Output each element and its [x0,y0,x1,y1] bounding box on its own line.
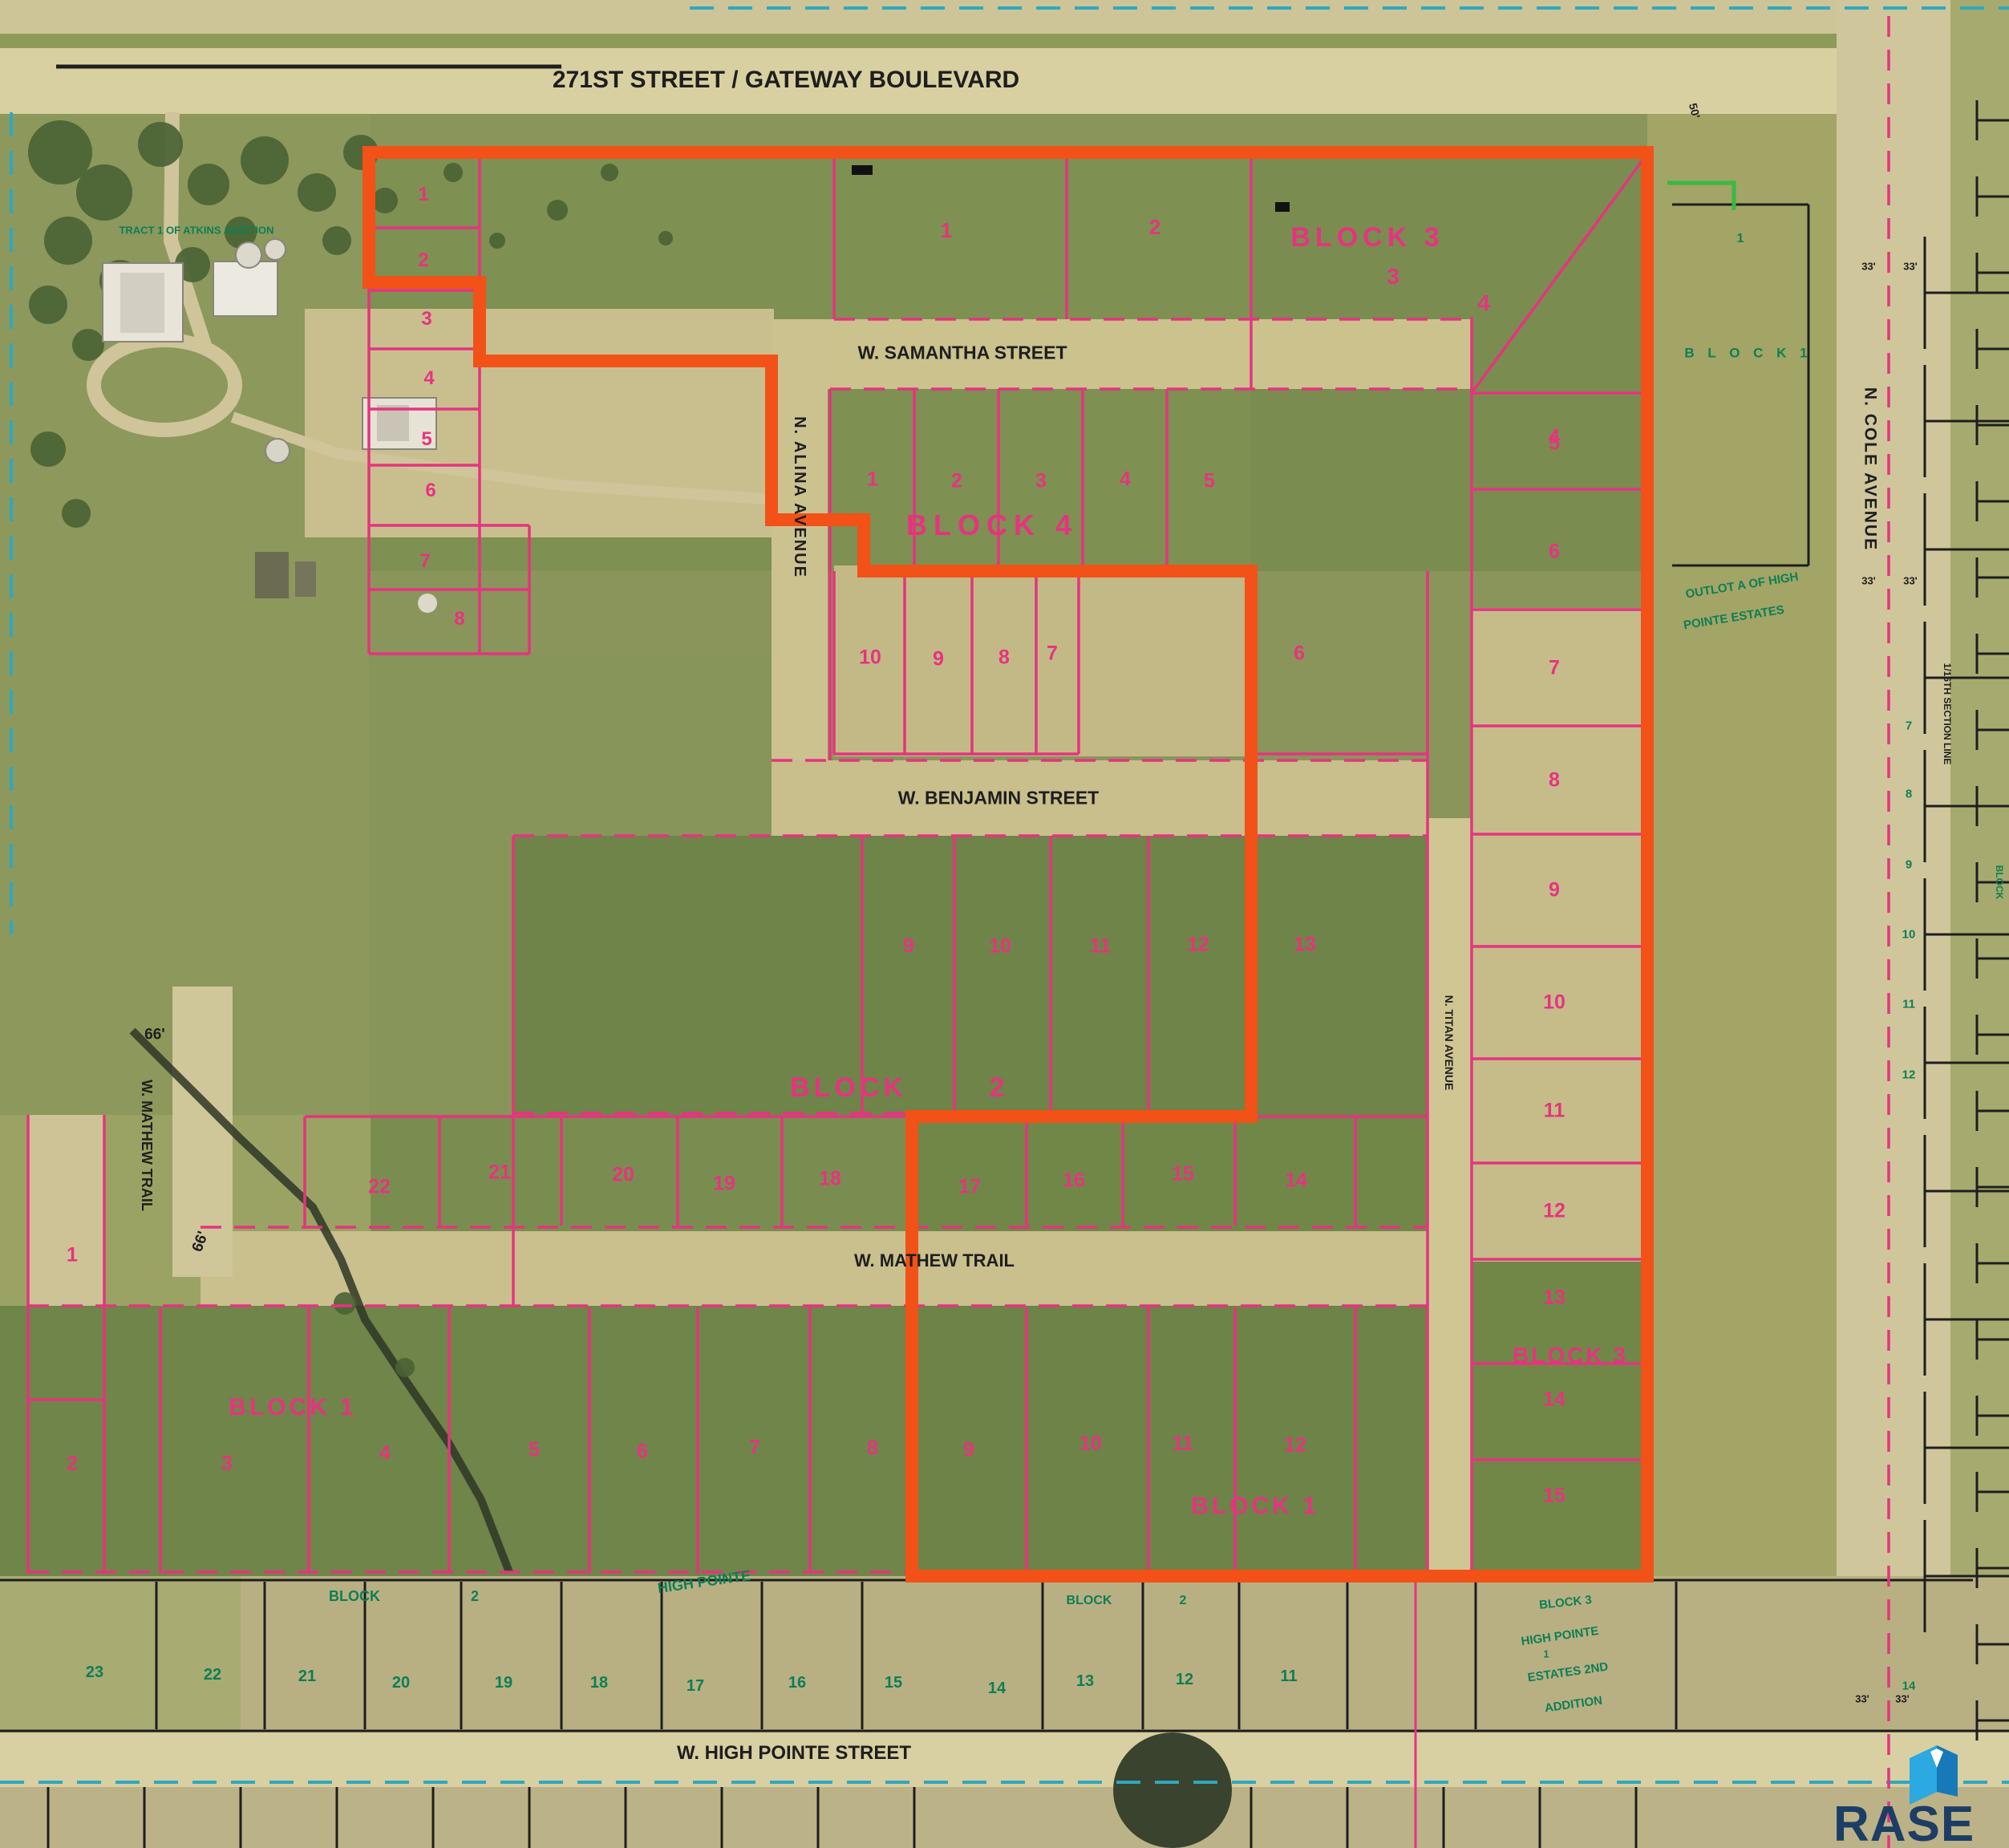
existing-plat-label: 10 [1902,929,1916,941]
outlot-label-line2: POINTE ESTATES [1683,604,1785,632]
existing-plat-label: 16 [788,1675,806,1691]
existing-plat-label: 20 [392,1675,410,1691]
existing-plat-label: 21 [298,1668,316,1684]
rase-logo: RASE [1833,1747,2006,1848]
existing-plat-label: 13 [1076,1673,1094,1689]
block3-addition-line1: BLOCK 3 [1538,1594,1592,1611]
existing-plat-label: 18 [590,1675,608,1691]
existing-plat-label: 14 [1902,1680,1916,1692]
outlot-label-line1: OUTLOT A OF HIGH [1685,570,1800,600]
existing-plat-label: 19 [495,1675,512,1691]
block3-addition-line3: ESTATES 2ND [1527,1661,1609,1684]
existing-plat-label: 11 [1902,999,1915,1011]
existing-plat-label: 2 [471,1589,479,1603]
teal-plat-labels-layer: TRACT 1 OF ATKINS ADDITION1B L O C K 1OU… [0,0,2009,1848]
existing-plat-label: 1 [1737,233,1744,245]
block3-addition-line4: ADDITION [1544,1695,1603,1715]
existing-plat-label: 8 [1906,788,1912,800]
existing-plat-label: 14 [988,1680,1006,1696]
existing-plat-label: 12 [1902,1069,1916,1081]
existing-plat-label: 9 [1906,859,1912,871]
high-pointe-label: HIGH POINTE [657,1568,751,1595]
plat-map: 271ST STREET / GATEWAY BOULEVARDW. SAMAN… [0,0,2009,1848]
block3-addition-line2: HIGH POINTE [1521,1625,1600,1647]
existing-plat-label: 22 [204,1667,221,1683]
block-label-right-edge: BLOCK [1995,865,2004,900]
existing-plat-label: 7 [1906,720,1912,732]
existing-plat-label: 1 [1543,1649,1549,1660]
existing-plat-label: 17 [687,1678,704,1694]
existing-plat-label: 23 [86,1664,103,1680]
existing-plat-label: BLOCK [329,1589,380,1603]
tract-label-atkins: TRACT 1 OF ATKINS ADDITION [119,225,273,236]
existing-plat-label: BLOCK [1067,1595,1112,1607]
existing-plat-label: 15 [885,1675,902,1691]
block-label-1-east-existing: B L O C K 1 [1684,346,1812,360]
existing-plat-label: 11 [1280,1668,1297,1684]
rase-logo-text: RASE [1833,1796,1975,1848]
existing-plat-label: 2 [1180,1595,1187,1607]
existing-plat-label: 12 [1176,1672,1193,1688]
